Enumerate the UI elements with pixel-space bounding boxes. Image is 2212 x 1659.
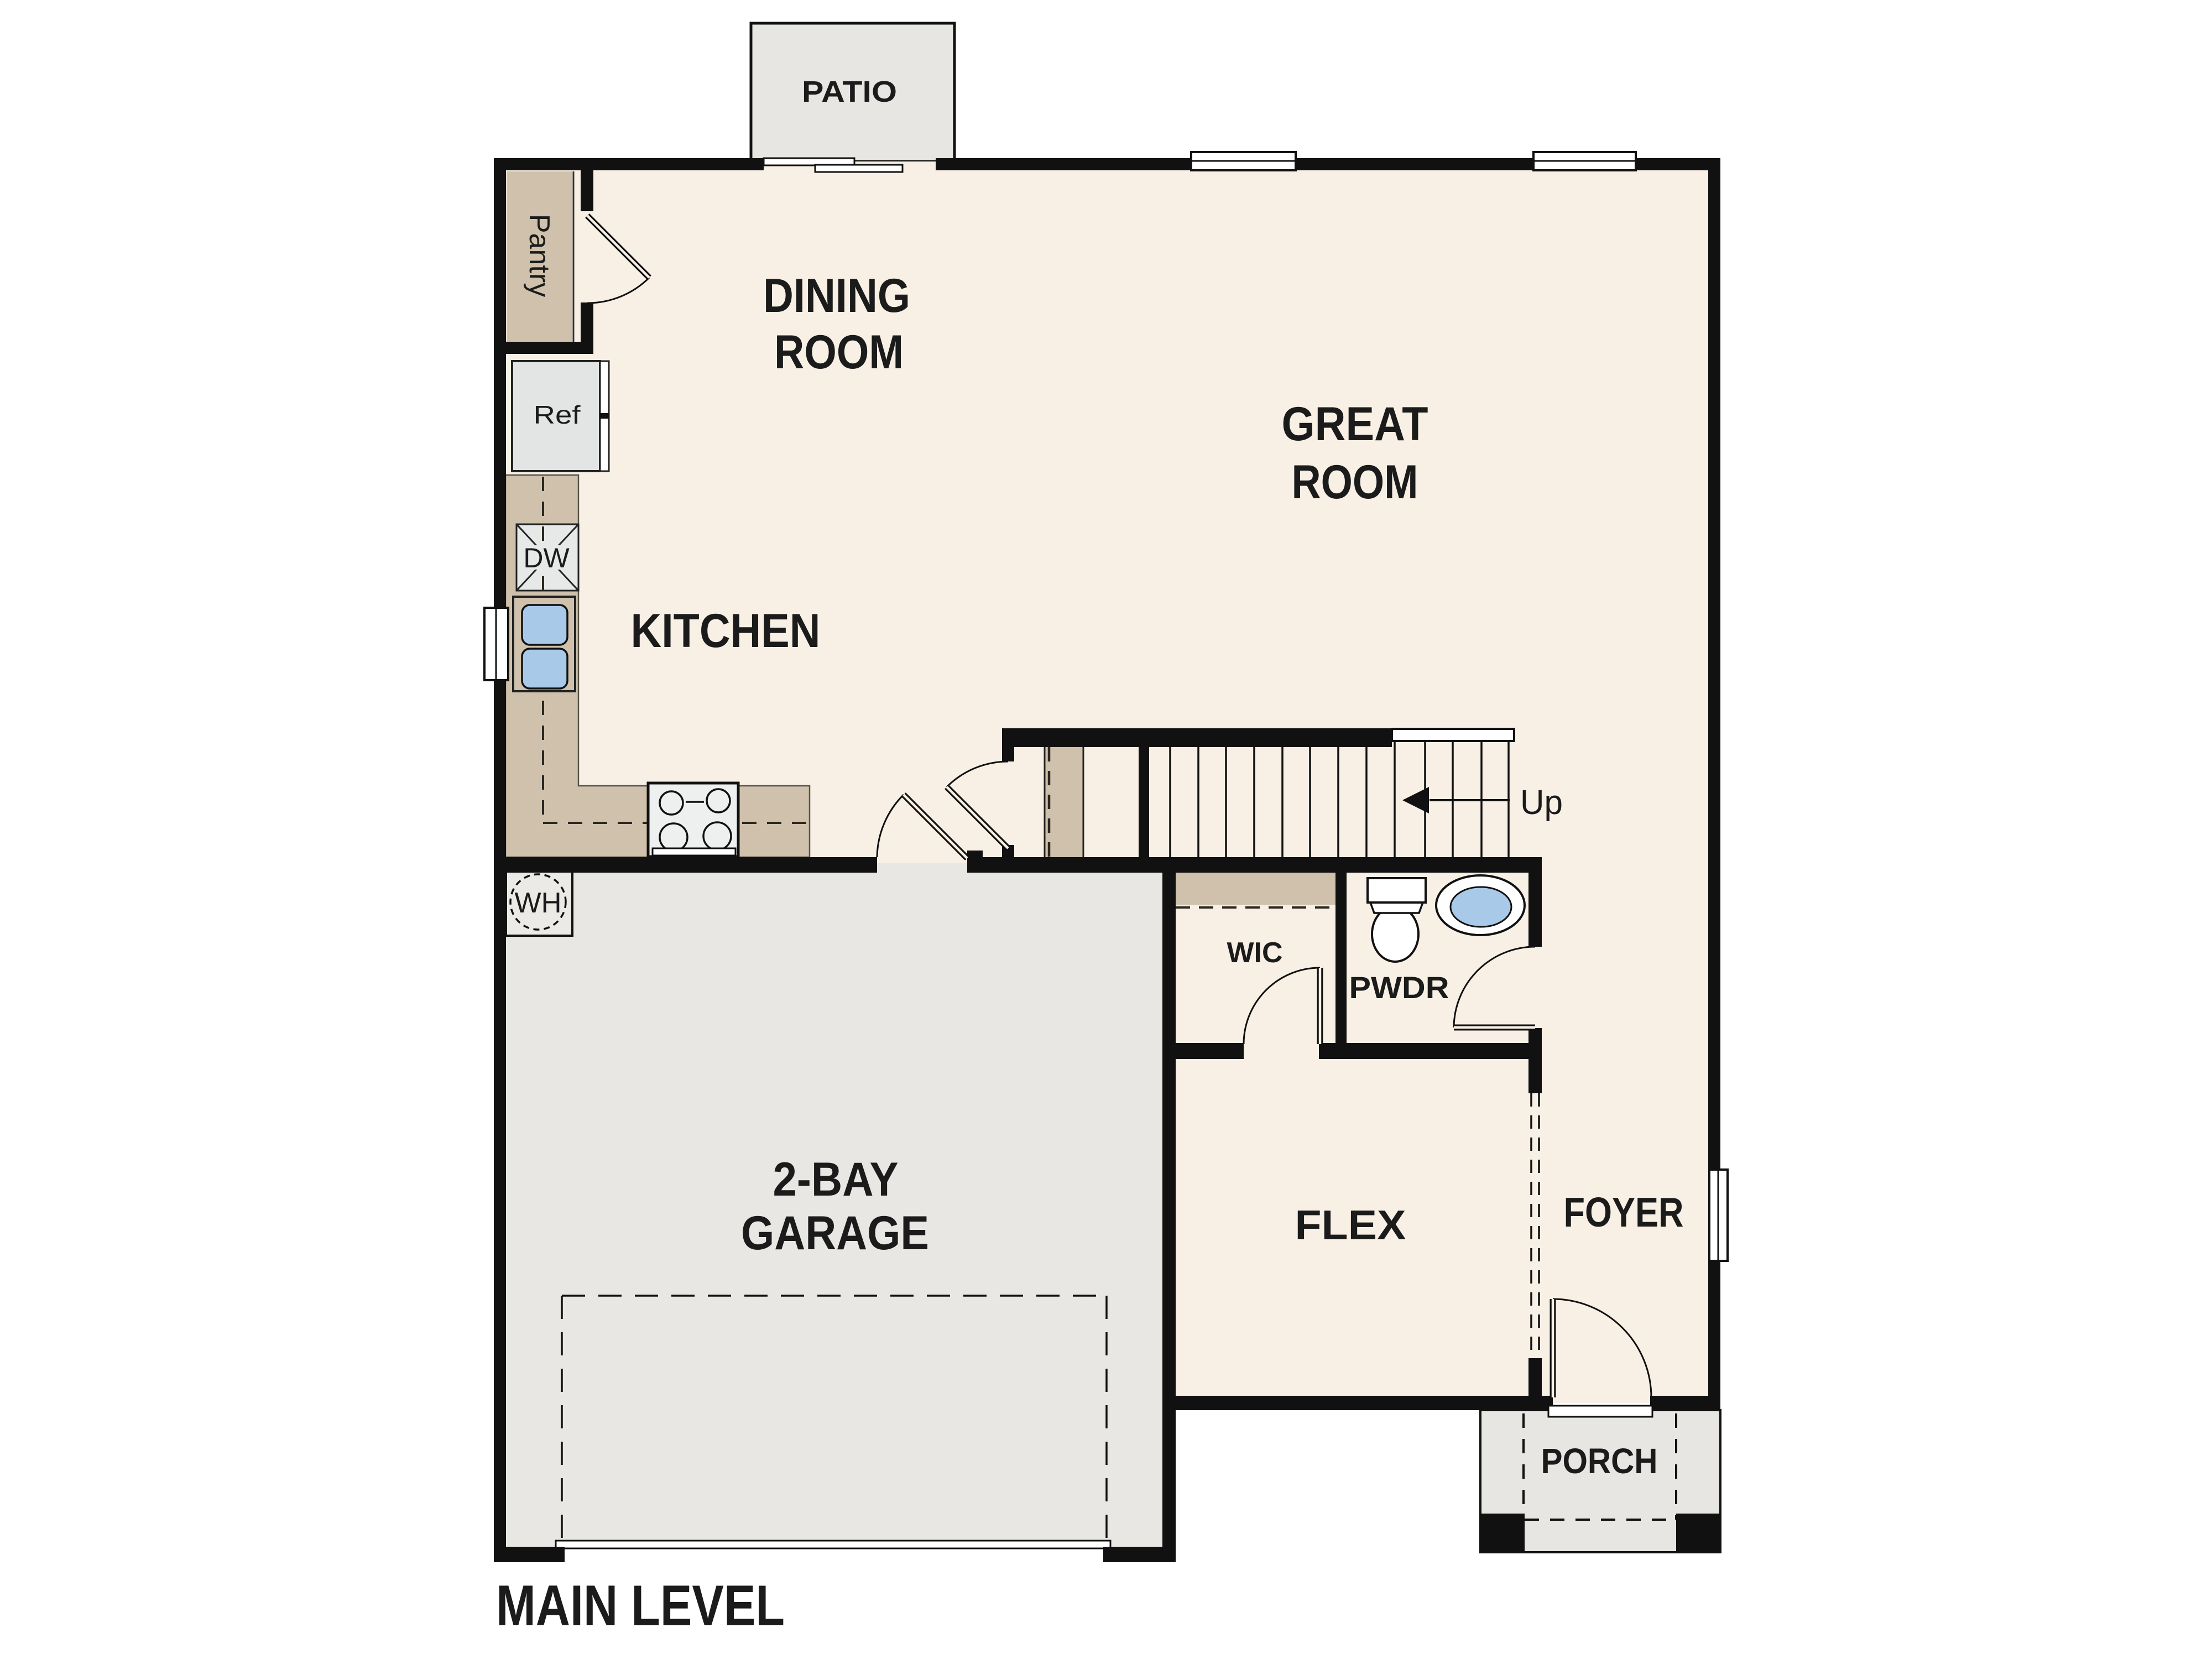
svg-text:DINING: DINING <box>763 269 910 322</box>
svg-text:ROOM: ROOM <box>1292 456 1418 509</box>
svg-text:GARAGE: GARAGE <box>741 1207 929 1260</box>
svg-text:FLEX: FLEX <box>1295 1202 1406 1248</box>
svg-text:WIC: WIC <box>1227 937 1283 969</box>
svg-text:WH: WH <box>515 887 562 919</box>
svg-text:PWDR: PWDR <box>1349 970 1449 1005</box>
svg-text:GREAT: GREAT <box>1282 398 1428 451</box>
svg-text:KITCHEN: KITCHEN <box>631 604 821 658</box>
svg-text:Up: Up <box>1520 784 1563 822</box>
svg-text:Ref: Ref <box>534 400 581 429</box>
svg-text:Pantry: Pantry <box>523 214 555 297</box>
svg-text:FOYER: FOYER <box>1564 1189 1684 1235</box>
svg-text:DW: DW <box>523 542 570 573</box>
svg-text:ROOM: ROOM <box>774 326 904 379</box>
svg-text:MAIN LEVEL: MAIN LEVEL <box>496 1574 785 1638</box>
svg-text:PATIO: PATIO <box>802 75 897 108</box>
svg-text:2-BAY: 2-BAY <box>773 1153 899 1206</box>
svg-text:PORCH: PORCH <box>1541 1441 1658 1481</box>
